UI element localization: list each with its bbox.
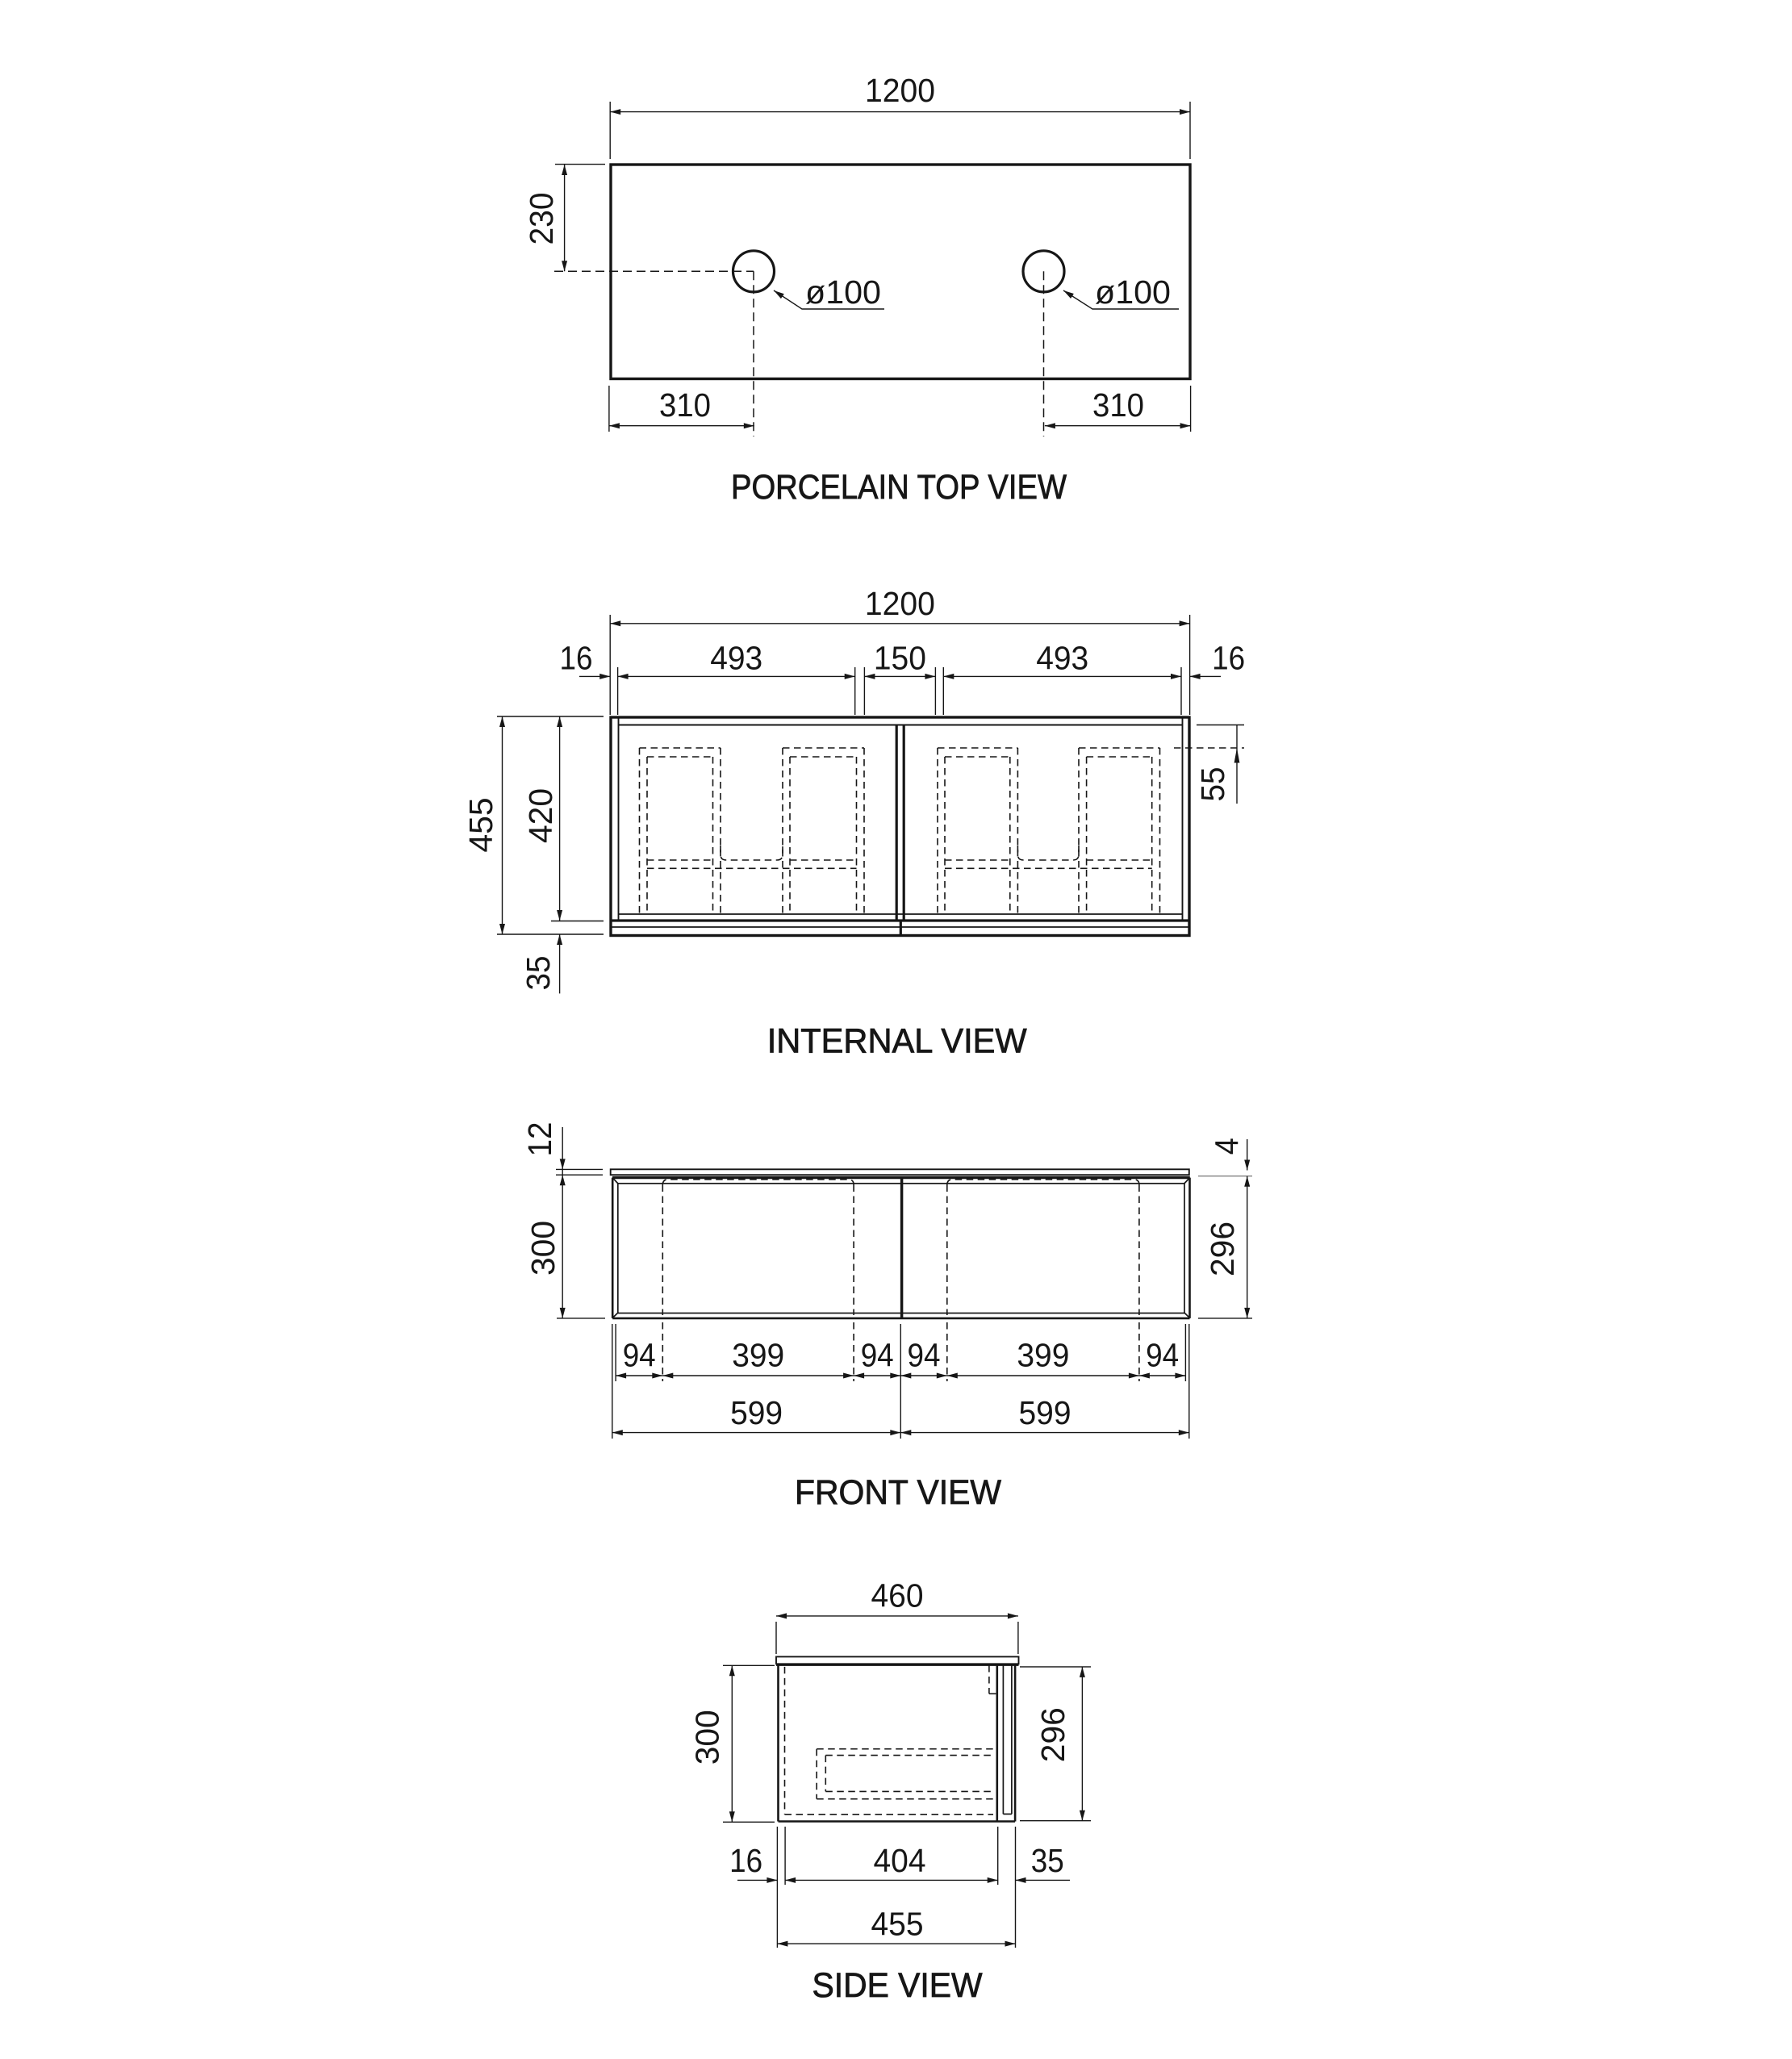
svg-text:PORCELAIN TOP VIEW: PORCELAIN TOP VIEW	[731, 468, 1067, 507]
svg-text:399: 399	[1017, 1337, 1069, 1374]
svg-text:16: 16	[560, 640, 593, 677]
svg-text:55: 55	[1194, 767, 1231, 802]
svg-text:94: 94	[861, 1337, 894, 1374]
svg-text:ø100: ø100	[1095, 274, 1171, 311]
svg-text:35: 35	[520, 956, 557, 991]
svg-text:399: 399	[732, 1337, 784, 1374]
svg-text:SIDE VIEW: SIDE VIEW	[812, 1966, 983, 2005]
svg-text:599: 599	[1019, 1394, 1071, 1431]
svg-text:16: 16	[1212, 640, 1245, 677]
svg-text:420: 420	[522, 788, 559, 843]
svg-text:460: 460	[871, 1577, 924, 1614]
svg-text:4: 4	[1208, 1138, 1245, 1155]
svg-text:150: 150	[874, 640, 926, 677]
svg-text:310: 310	[659, 386, 711, 424]
svg-text:94: 94	[1146, 1337, 1179, 1374]
svg-text:12: 12	[521, 1122, 558, 1157]
svg-text:300: 300	[689, 1710, 726, 1765]
svg-text:ø100: ø100	[805, 274, 881, 311]
svg-text:230: 230	[523, 193, 560, 245]
svg-text:16: 16	[729, 1842, 762, 1879]
svg-text:296: 296	[1034, 1707, 1071, 1762]
svg-text:300: 300	[524, 1221, 562, 1276]
svg-text:493: 493	[710, 640, 762, 677]
svg-text:493: 493	[1036, 640, 1088, 677]
svg-text:296: 296	[1204, 1222, 1241, 1276]
svg-text:INTERNAL VIEW: INTERNAL VIEW	[767, 1022, 1027, 1061]
svg-text:404: 404	[874, 1842, 926, 1879]
svg-text:94: 94	[623, 1337, 656, 1374]
svg-text:FRONT VIEW: FRONT VIEW	[795, 1473, 1001, 1512]
svg-text:455: 455	[871, 1906, 924, 1943]
svg-text:599: 599	[730, 1394, 783, 1431]
svg-text:1200: 1200	[865, 72, 935, 109]
svg-text:1200: 1200	[865, 585, 935, 622]
svg-text:310: 310	[1092, 386, 1144, 424]
svg-text:35: 35	[1031, 1842, 1064, 1879]
svg-text:455: 455	[462, 798, 499, 853]
svg-text:94: 94	[908, 1337, 941, 1374]
